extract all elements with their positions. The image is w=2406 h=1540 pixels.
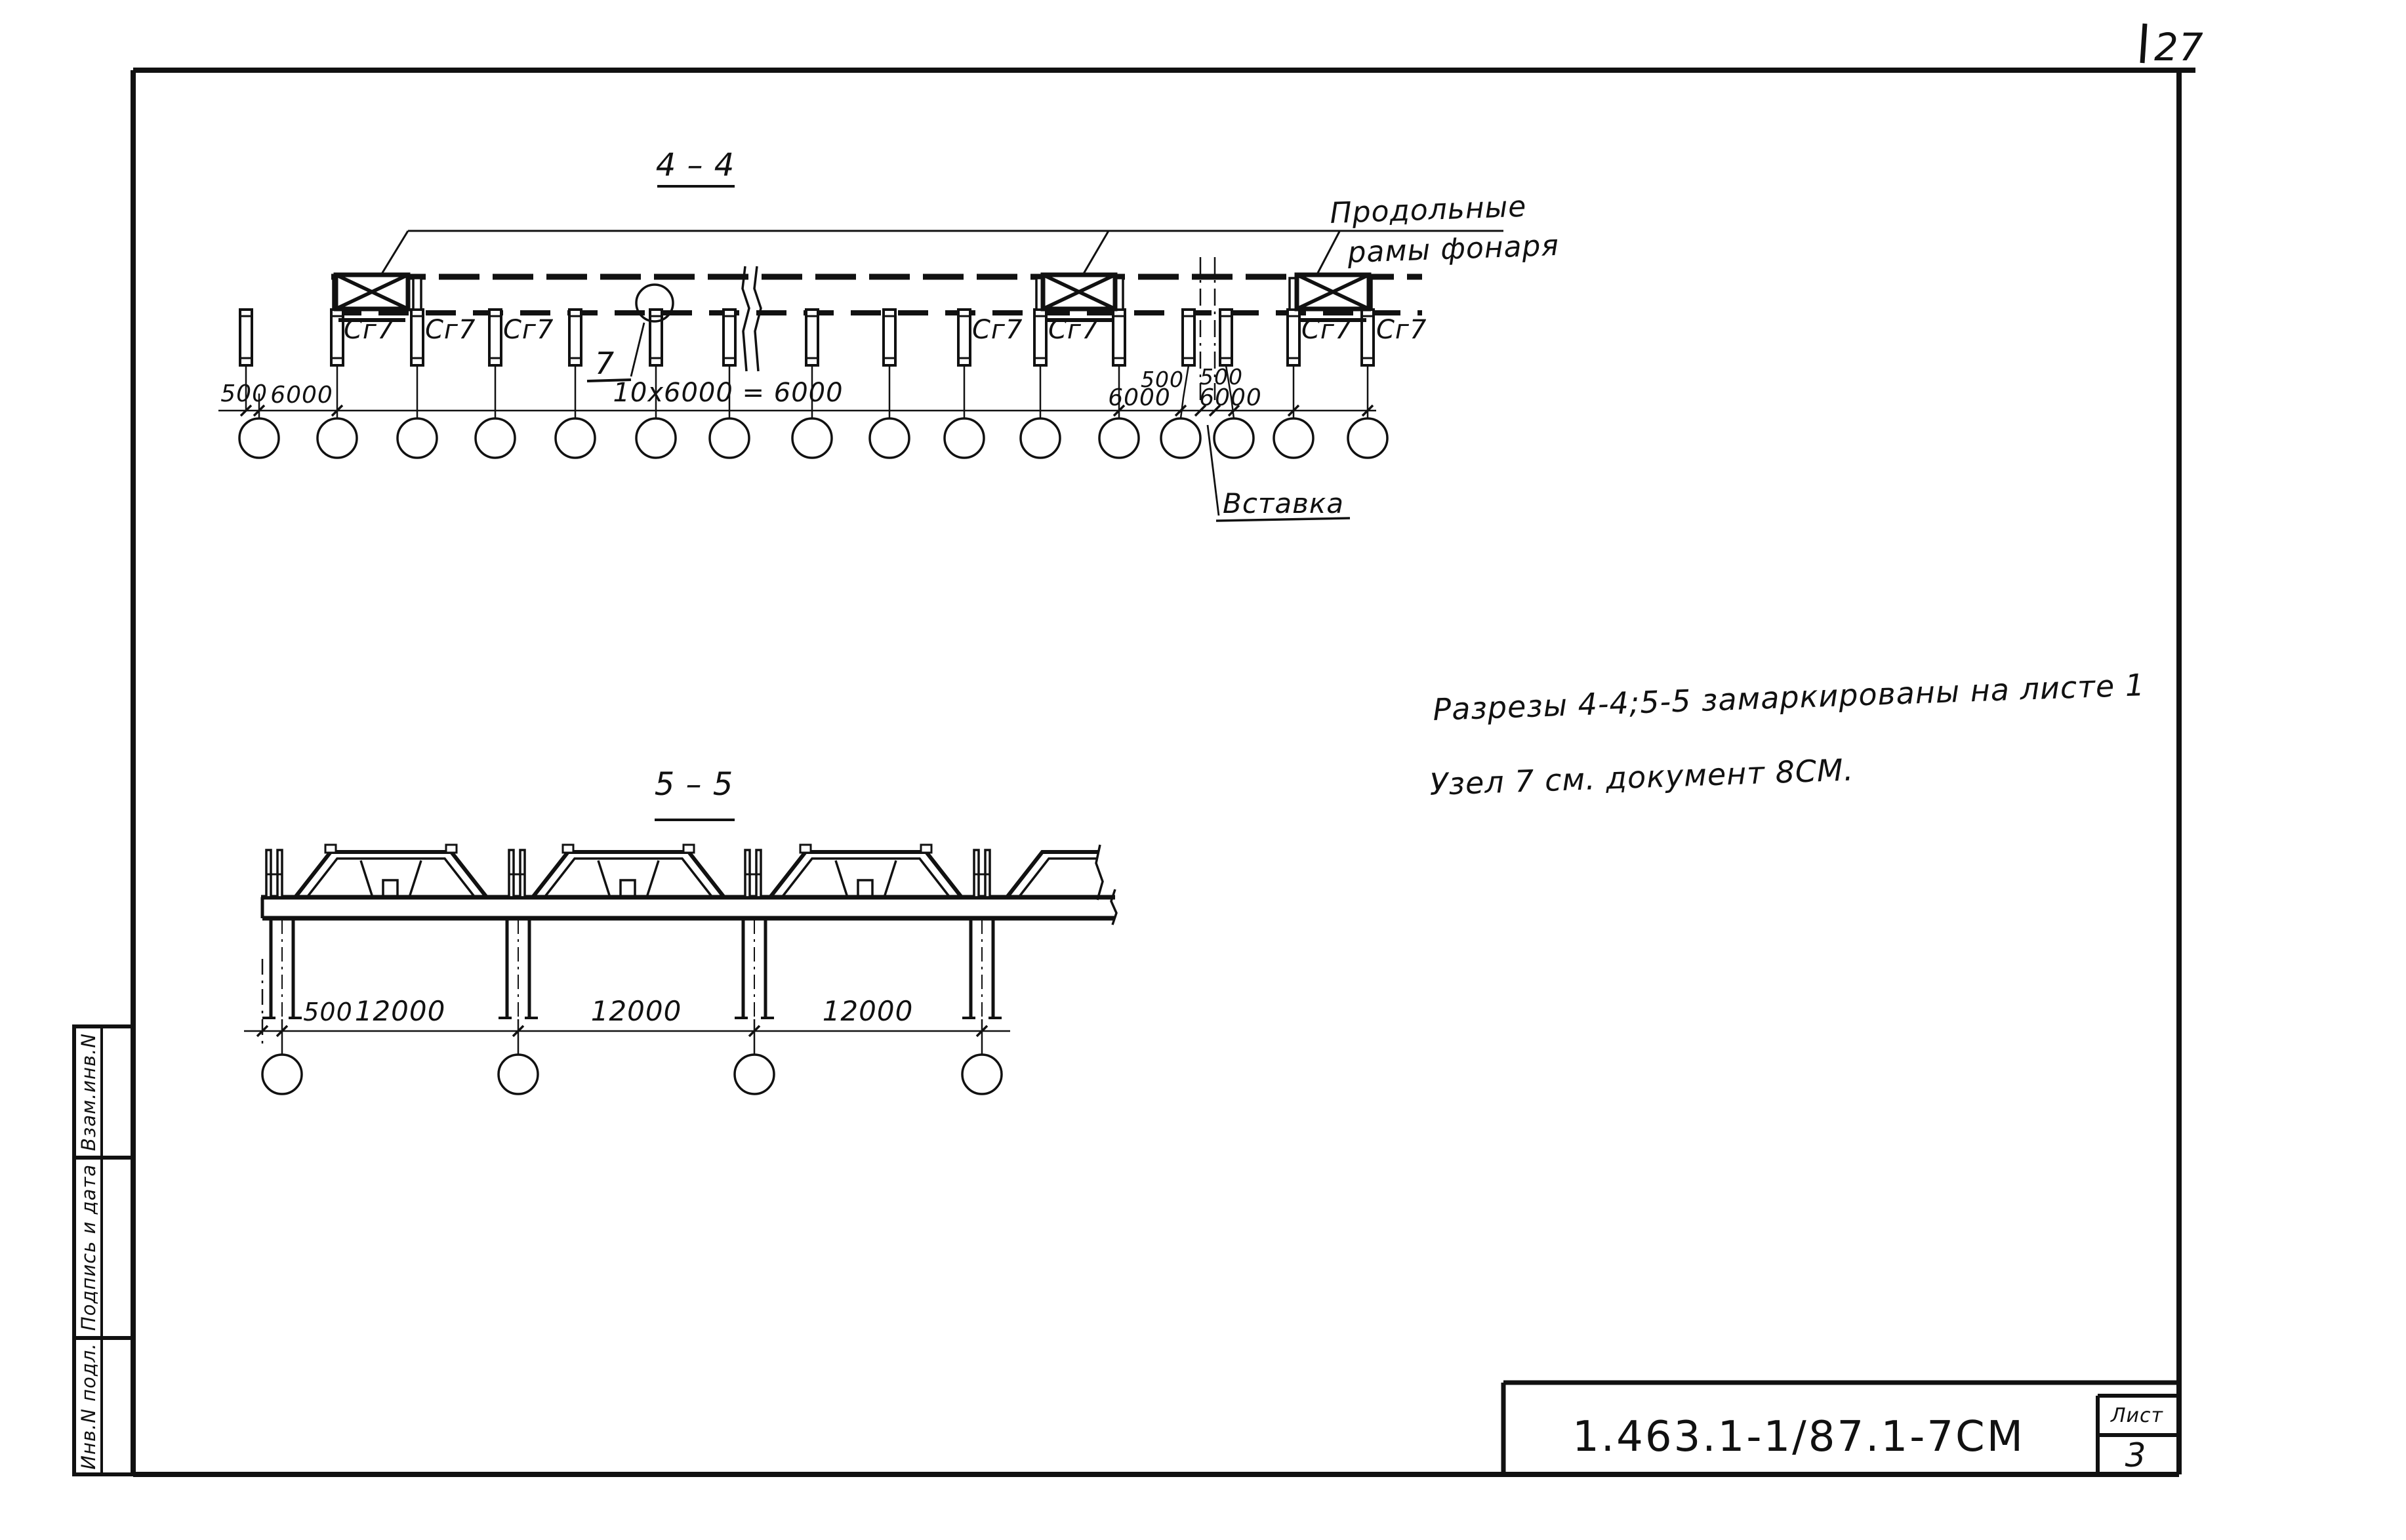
lantern-label-line2: рамы фонаря [1347, 229, 1560, 270]
notes: Разрезы 4-4;5-5 замаркированы на листе 1… [1429, 667, 2145, 802]
grid-axis-circle [476, 418, 515, 458]
grid-axis-circle [735, 1055, 774, 1094]
lantern-window-side [836, 861, 847, 897]
leader-drop [379, 231, 408, 278]
break-line [754, 266, 761, 371]
column [1034, 310, 1046, 365]
page-number: 27 [2154, 25, 2204, 70]
lantern-top-tab [325, 845, 336, 853]
stamp-label-vzam: Взам.инв.N [77, 1033, 100, 1151]
grid-axis-circle [945, 418, 984, 458]
grid-axis-circle [556, 418, 595, 458]
frame-mark-label: Сг7 [1048, 315, 1099, 345]
column-assembly [262, 920, 302, 1094]
frame-mark-label: Сг7 [344, 315, 394, 345]
section-4-4-generated: Сг7Сг7Сг7Сг7Сг7Сг7Сг7 [239, 275, 1427, 458]
grid-axis-circle [870, 418, 909, 458]
column-upper-part [413, 278, 421, 310]
frame-mark-label: Сг7 [1376, 315, 1427, 345]
stamp-label-inv: Инв.N подл. [77, 1343, 100, 1469]
corner-page-number: 27 [2142, 24, 2204, 70]
lantern-window-side [884, 861, 896, 897]
grid-axis-circle [262, 1055, 302, 1094]
lantern-window-notch [621, 880, 635, 897]
sheet-number: 3 [2125, 1436, 2147, 1474]
grid-axis-circle [499, 1055, 538, 1094]
column [1220, 310, 1232, 365]
lantern-window-side [598, 861, 610, 897]
grid-axis-circle [962, 1055, 1002, 1094]
lantern-inner-chord [307, 859, 475, 897]
section-5-5-title: 5 – 5 [655, 766, 734, 803]
node-number: 7 [595, 346, 615, 381]
lantern-window-notch [383, 880, 398, 897]
roof-post-pair [266, 850, 282, 897]
column [650, 310, 662, 365]
column [1183, 310, 1194, 365]
lantern-window-side [361, 861, 373, 897]
column [1113, 310, 1125, 365]
column-assembly [499, 920, 538, 1094]
grid-axis-circle [710, 418, 749, 458]
dim-500-left: 500 [220, 380, 268, 407]
roof-post-pair [745, 850, 761, 897]
leader-drop [1316, 232, 1339, 275]
lantern-unit [1007, 845, 1103, 900]
frame-mark-label: Сг7 [972, 315, 1023, 345]
section-5-5: 5 – 5 500 12000 12000 12000 [244, 766, 1116, 1094]
lantern-window-side [409, 861, 421, 897]
lantern-unit [295, 845, 487, 897]
lantern-leader: Продольные рамы фонаря [379, 190, 1560, 278]
column [958, 310, 970, 365]
lantern-window-side [647, 861, 659, 897]
column [331, 310, 343, 365]
leader-drop [1081, 231, 1109, 278]
lantern-top-tab [446, 845, 457, 853]
node-leader [631, 323, 644, 376]
lantern-inner-chord [544, 859, 712, 897]
grid-axis-circle [1099, 418, 1139, 458]
lantern-top-tab [800, 845, 811, 853]
section-5-5-generated [257, 845, 1103, 1094]
document-designation: 1.463.1-1/87.1-7СМ [1572, 1413, 2025, 1461]
dimensions-4-4: 500 6000 10х6000 = 6000 6000 500 500 600… [218, 364, 1376, 411]
dim-span-2: 12000 [591, 995, 682, 1027]
column [806, 310, 818, 365]
column [411, 310, 423, 365]
grid-axis-circle [636, 418, 676, 458]
grid-axis-circle [398, 418, 437, 458]
node-number-underline [587, 380, 631, 381]
column [884, 310, 895, 365]
column-assembly [735, 920, 774, 1094]
break-marks [743, 266, 761, 371]
grid-axis-circle [1021, 418, 1060, 458]
dim-span-1: 12000 [355, 995, 446, 1027]
frame-mark-label: Сг7 [503, 315, 554, 345]
stamp-label-podpis: Подпись и дата [77, 1164, 100, 1331]
dim-span-3: 12000 [823, 995, 914, 1027]
insert-callout: Вставка [1208, 425, 1350, 521]
dim-6000-left: 6000 [270, 382, 333, 409]
column-assembly [962, 920, 1002, 1094]
roof-post-pair [974, 850, 990, 897]
title-block: 1.463.1-1/87.1-7СМ Лист 3 [1503, 1383, 2179, 1474]
lantern-unit [533, 845, 724, 897]
dim-500-a: 500 [1141, 367, 1184, 392]
lantern-inner-chord [782, 859, 950, 897]
insert-label: Вставка [1223, 487, 1344, 519]
lantern-label-line1: Продольные [1330, 190, 1528, 230]
lantern-unit [770, 845, 962, 897]
grid-axis-circle [317, 418, 357, 458]
grid-axis-circle [1274, 418, 1313, 458]
dim-main-span: 10х6000 = 6000 [613, 378, 843, 408]
lantern-top-tab [683, 845, 694, 853]
drawing-frame [133, 70, 2195, 1474]
dim-500: 500 [303, 998, 353, 1026]
dimensions-5-5: 500 12000 12000 12000 [244, 995, 1010, 1031]
frame-mark-label: Сг7 [1301, 315, 1352, 345]
note-line-1: Разрезы 4-4;5-5 замаркированы на листе 1 [1432, 667, 2145, 727]
lantern-top-tab [921, 845, 931, 853]
note-line-2: Узел 7 см. документ 8СМ. [1429, 752, 1854, 802]
sheet-label: Лист [2110, 1404, 2164, 1427]
drawing-sheet: 27 Взам.инв.N Подпись и дата Инв.N подл.… [0, 0, 2406, 1540]
grid-axis-circle [1161, 418, 1200, 458]
section-4-4: 4 – 4 Продольные рамы фонаря Сг7Сг7Сг7Сг… [218, 147, 1560, 521]
lantern-top-tab [563, 845, 573, 853]
grid-axis-circle [792, 418, 832, 458]
column [1288, 310, 1299, 365]
dim-6000-right: 6000 [1199, 384, 1262, 411]
section-4-4-title: 4 – 4 [656, 147, 735, 184]
grid-axis-circle [1348, 418, 1387, 458]
column [240, 310, 252, 365]
break-line [743, 266, 749, 371]
frame-mark-label: Сг7 [425, 315, 476, 345]
grid-axis-circle [239, 418, 279, 458]
side-stamp: Взам.инв.N Подпись и дата Инв.N подл. [74, 1026, 133, 1474]
corner-tick-mark [2142, 24, 2145, 63]
column [724, 310, 735, 365]
column [569, 310, 581, 365]
column [1362, 310, 1374, 365]
roof-post-pair [509, 850, 525, 897]
lantern-window-notch [858, 880, 872, 897]
grid-axis-circle [1214, 418, 1254, 458]
column [489, 310, 501, 365]
